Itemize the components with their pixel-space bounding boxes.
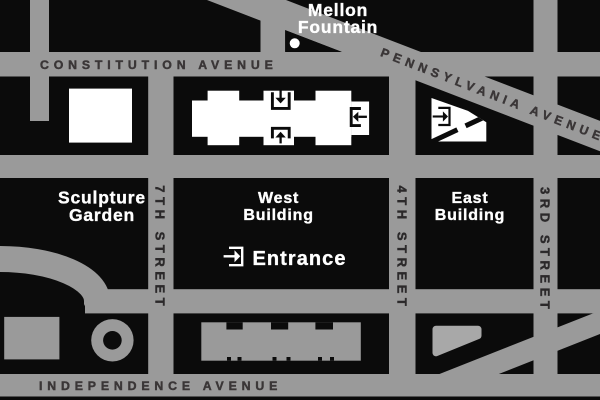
svg-text:East: East [452,190,489,207]
svg-text:Building: Building [243,207,313,224]
svg-text:Building: Building [435,207,505,224]
svg-text:3RD STREET: 3RD STREET [538,187,553,313]
svg-text:Entrance: Entrance [253,248,347,270]
svg-text:4TH STREET: 4TH STREET [395,186,410,311]
svg-text:Garden: Garden [69,205,135,225]
svg-text:INDEPENDENCE AVENUE: INDEPENDENCE AVENUE [39,379,282,393]
svg-text:Fountain: Fountain [298,17,378,37]
svg-text:7TH STREET: 7TH STREET [153,185,168,310]
svg-text:CONSTITUTION AVENUE: CONSTITUTION AVENUE [40,58,278,72]
svg-text:West: West [258,190,299,207]
